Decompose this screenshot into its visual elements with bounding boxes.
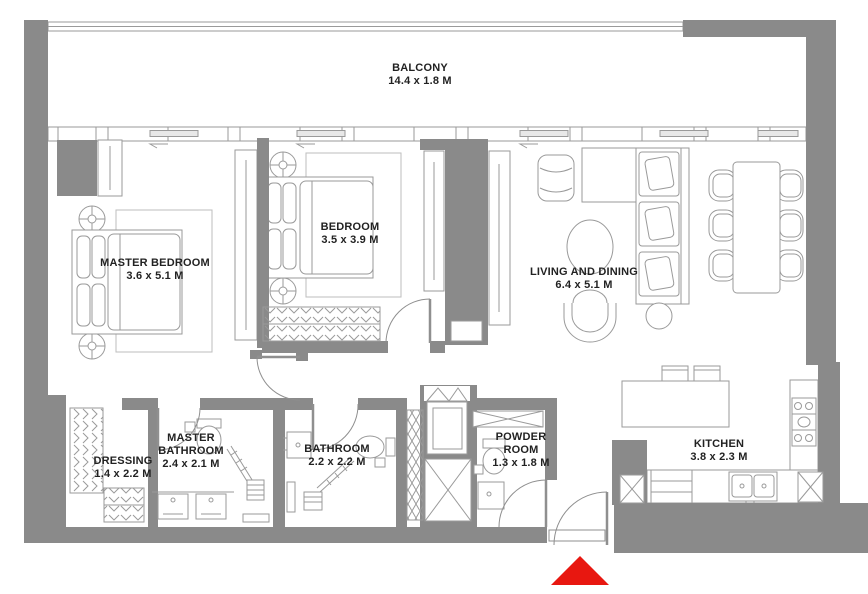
door-swing-icon <box>386 299 430 343</box>
room-label-bathroom: BATHROOM 2.2 x 2.2 M <box>291 443 383 469</box>
wall <box>273 398 285 527</box>
room-dims: 3.5 x 3.9 M <box>300 234 400 247</box>
room-dims: 3.8 x 2.3 M <box>674 451 764 464</box>
bar-stool-icon <box>694 366 720 381</box>
room-dims: 14.4 x 1.8 M <box>350 75 490 88</box>
shaft-icon <box>620 475 644 503</box>
entrance-arrow-icon <box>551 556 609 585</box>
room-name: LIVING AND DINING <box>504 266 664 279</box>
room-dims: 6.4 x 5.1 M <box>504 279 664 292</box>
room-dims: 2.4 x 2.1 M <box>151 458 231 471</box>
room-dims: 1.3 x 1.8 M <box>489 457 553 470</box>
sink-icon <box>196 494 226 519</box>
balcony-railing <box>48 22 683 31</box>
laundry-box-icon <box>304 492 322 510</box>
room-dims: 2.2 x 2.2 M <box>291 456 383 469</box>
floor-plan-drawing <box>0 0 868 594</box>
side-table-icon <box>646 303 672 329</box>
room-name: KITCHEN <box>674 438 764 451</box>
wall <box>44 395 66 527</box>
wall <box>806 20 836 365</box>
lamp-icon <box>79 206 105 232</box>
floor-plan-page: BALCONY 14.4 x 1.8 M MASTER BEDROOM 3.6 … <box>0 0 868 594</box>
room-name: MASTER BEDROOM <box>85 257 225 270</box>
room-label-living-dining: LIVING AND DINING 6.4 x 5.1 M <box>504 266 664 292</box>
shaft-icon <box>798 472 823 502</box>
room-name: MASTER BATHROOM <box>151 432 231 458</box>
room-label-master-bedroom: MASTER BEDROOM 3.6 x 5.1 M <box>85 257 225 283</box>
room-name: POWDER ROOM <box>489 431 553 457</box>
sink-icon <box>158 494 188 519</box>
wall <box>420 139 445 150</box>
wall <box>57 140 97 196</box>
wall <box>430 341 445 353</box>
wardrobe-icon <box>263 307 380 341</box>
door-swing-icon <box>257 357 300 400</box>
shaft-icon <box>473 411 543 427</box>
armchair-icon <box>564 290 616 342</box>
cistern-icon <box>474 465 483 474</box>
wall <box>445 139 488 345</box>
lounge-chair-icon <box>538 155 574 201</box>
room-label-balcony: BALCONY 14.4 x 1.8 M <box>350 62 490 88</box>
room-name: BATHROOM <box>291 443 383 456</box>
shaft-icon <box>425 459 471 521</box>
room-name: BEDROOM <box>300 221 400 234</box>
room-label-powder-room: POWDER ROOM 1.3 x 1.8 M <box>489 431 553 470</box>
wall <box>262 341 388 353</box>
room-dims: 3.6 x 5.1 M <box>85 270 225 283</box>
washer-icon <box>427 402 467 454</box>
folding-door-icon <box>424 386 470 401</box>
kitchen-cabinet-icon <box>651 470 692 503</box>
wall <box>396 398 407 527</box>
room-label-master-bathroom: MASTER BATHROOM 2.4 x 2.1 M <box>151 432 231 471</box>
lamp-icon <box>270 278 296 304</box>
towel-radiator-icon <box>247 480 264 500</box>
room-name: BALCONY <box>350 62 490 75</box>
wardrobe-icon <box>104 488 144 522</box>
stove-icon <box>790 380 818 471</box>
lamp-icon <box>270 152 296 178</box>
dining-table-icon <box>733 162 780 293</box>
sofa-chaise-icon <box>582 148 638 202</box>
sink-icon <box>478 482 504 509</box>
lamp-icon <box>79 333 105 359</box>
wall <box>24 527 547 543</box>
tv-niche <box>451 321 482 341</box>
shelf-column <box>287 482 295 512</box>
room-label-kitchen: KITCHEN 3.8 x 2.3 M <box>674 438 764 464</box>
shaft-icon <box>407 410 423 520</box>
entry-door-swing-icon <box>549 492 607 545</box>
bath-mat <box>243 514 269 522</box>
master-bedroom-furniture <box>72 140 257 359</box>
wall <box>614 503 868 553</box>
room-label-bedroom: BEDROOM 3.5 x 3.9 M <box>300 221 400 247</box>
door-swing-icon <box>499 480 546 527</box>
kitchen-island-icon <box>622 381 729 427</box>
kitchen-furniture <box>622 366 818 508</box>
living-dining-furniture <box>538 148 803 342</box>
window-band <box>48 127 806 141</box>
bar-stool-icon <box>662 366 688 381</box>
